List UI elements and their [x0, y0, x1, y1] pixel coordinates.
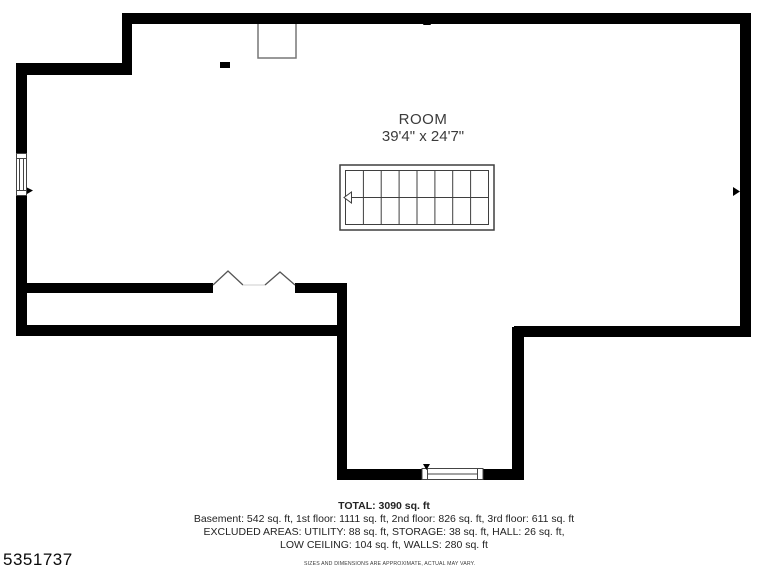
door-right-swing: [265, 272, 295, 285]
window-left-tick: [27, 188, 33, 195]
window-left: [17, 154, 34, 196]
wall-left-upper: [16, 63, 27, 153]
door-left-swing: [213, 271, 243, 285]
wall-bottom-right-section: [514, 326, 751, 337]
summary-excluded-areas: EXCLUDED AREAS: UTILITY: 88 sq. ft, STOR…: [0, 526, 768, 539]
wall-bottom-left: [16, 325, 347, 336]
disclaimer-text: SIZES AND DIMENSIONS ARE APPROXIMATE, AC…: [304, 561, 475, 567]
structural-post: [220, 62, 230, 68]
chimney-box: [258, 20, 296, 58]
wall-right: [740, 13, 751, 337]
wall-left-shoulder: [16, 63, 132, 75]
wall-left-lower: [16, 196, 27, 336]
double-door-symbol: [213, 271, 295, 285]
wall-top: [122, 13, 751, 24]
floor-plan-page: ROOM 39'4" x 24'7" TOTAL: 3090 sq. ft Ba…: [0, 0, 768, 576]
wall-entry-right: [512, 327, 524, 480]
summary-floors: Basement: 542 sq. ft, 1st floor: 1111 sq…: [0, 513, 768, 526]
summary-total: TOTAL: 3090 sq. ft: [0, 500, 768, 513]
room-dimensions: 39'4" x 24'7": [343, 128, 503, 146]
right-wall-marker-arrow: [733, 187, 740, 196]
floor-plan-drawing: [0, 0, 768, 576]
room-name: ROOM: [343, 111, 503, 128]
wall-center-vertical: [337, 283, 347, 480]
area-summary: TOTAL: 3090 sq. ft Basement: 542 sq. ft,…: [0, 500, 768, 553]
summary-excluded-areas-2: LOW CEILING: 104 sq. ft, WALLS: 280 sq. …: [0, 539, 768, 552]
walls: [16, 13, 751, 480]
window-bottom: [422, 464, 483, 480]
wall-entry-bottom-left: [337, 469, 422, 480]
staircase: [340, 165, 494, 230]
disclaimer-wrap: SIZES AND DIMENSIONS ARE APPROXIMATE, AC…: [0, 553, 768, 571]
room-label: ROOM 39'4" x 24'7": [343, 111, 503, 146]
wall-mid-left: [27, 283, 213, 293]
